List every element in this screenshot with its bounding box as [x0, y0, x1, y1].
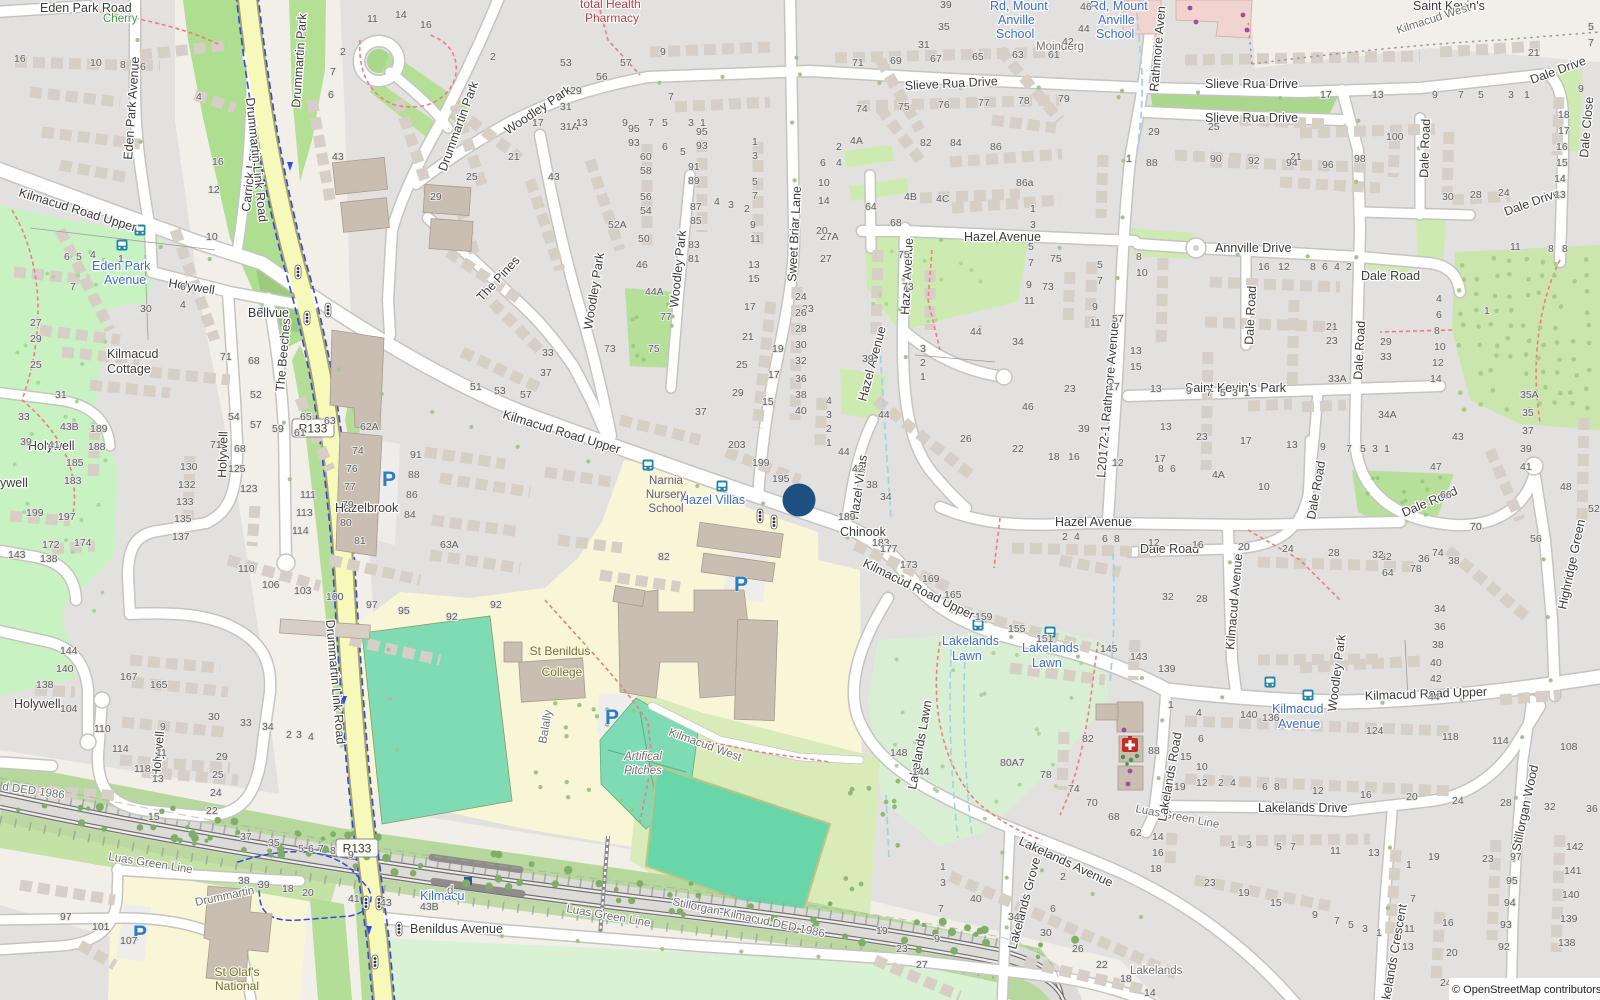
- svg-text:1: 1: [1230, 839, 1236, 851]
- svg-text:25: 25: [212, 769, 224, 781]
- svg-text:10: 10: [818, 177, 830, 189]
- svg-text:43: 43: [332, 151, 344, 163]
- svg-text:35: 35: [1522, 407, 1534, 419]
- svg-text:16: 16: [1068, 451, 1080, 463]
- svg-text:13: 13: [1150, 383, 1162, 395]
- svg-text:Cherry: Cherry: [103, 13, 138, 25]
- svg-text:7: 7: [1588, 37, 1594, 49]
- svg-text:7: 7: [752, 190, 758, 202]
- svg-text:35: 35: [938, 21, 950, 33]
- svg-text:2: 2: [286, 729, 292, 741]
- svg-text:6: 6: [1436, 309, 1442, 321]
- svg-text:177: 177: [880, 543, 898, 555]
- svg-text:17: 17: [1154, 453, 1166, 465]
- svg-text:43: 43: [380, 897, 392, 909]
- svg-text:63: 63: [1012, 49, 1024, 61]
- svg-text:Lakelands Drive: Lakelands Drive: [1258, 801, 1348, 815]
- svg-text:39: 39: [258, 879, 270, 891]
- svg-text:30: 30: [208, 711, 220, 723]
- svg-text:2: 2: [490, 51, 496, 63]
- svg-text:11: 11: [367, 13, 378, 25]
- svg-text:22: 22: [206, 805, 218, 817]
- svg-text:197: 197: [58, 511, 76, 523]
- svg-text:23: 23: [1064, 383, 1076, 395]
- svg-text:16: 16: [1360, 789, 1372, 801]
- svg-text:26: 26: [795, 307, 807, 319]
- svg-text:23: 23: [896, 943, 908, 955]
- svg-text:5: 5: [76, 251, 82, 263]
- svg-text:11: 11: [1330, 845, 1341, 857]
- svg-text:1: 1: [1406, 859, 1412, 871]
- svg-text:7: 7: [1028, 257, 1034, 269]
- svg-text:1: 1: [118, 253, 124, 265]
- svg-text:7: 7: [1346, 443, 1352, 455]
- svg-text:Artifical: Artifical: [623, 751, 662, 763]
- svg-text:19: 19: [772, 343, 784, 355]
- svg-text:Slieve Rua Drive: Slieve Rua Drive: [1205, 77, 1298, 91]
- svg-text:Kilmacud: Kilmacud: [107, 347, 158, 361]
- svg-text:31: 31: [560, 101, 572, 113]
- svg-text:1: 1: [752, 136, 758, 148]
- svg-text:Cottage: Cottage: [107, 362, 151, 376]
- svg-text:School: School: [996, 27, 1034, 41]
- svg-text:6: 6: [1262, 781, 1268, 793]
- svg-text:52A: 52A: [608, 219, 627, 231]
- svg-text:20: 20: [1406, 791, 1418, 803]
- svg-text:169: 169: [922, 573, 940, 585]
- svg-text:6: 6: [328, 89, 334, 101]
- svg-text:32: 32: [1544, 801, 1556, 813]
- svg-text:6: 6: [820, 157, 826, 169]
- svg-text:98: 98: [1354, 153, 1366, 165]
- svg-text:139: 139: [1560, 913, 1578, 925]
- svg-text:13: 13: [576, 117, 588, 129]
- svg-text:76: 76: [938, 99, 950, 111]
- svg-text:4: 4: [1436, 293, 1442, 305]
- svg-text:© OpenStreetMap contributors: © OpenStreetMap contributors: [1452, 984, 1600, 996]
- svg-text:189: 189: [838, 511, 856, 523]
- svg-text:21: 21: [1326, 321, 1338, 333]
- svg-text:Lawn: Lawn: [1032, 656, 1062, 670]
- svg-text:30: 30: [1040, 927, 1052, 939]
- svg-text:11: 11: [1510, 241, 1521, 253]
- svg-text:90: 90: [1210, 153, 1222, 165]
- svg-text:165: 165: [944, 589, 962, 601]
- svg-text:165: 165: [150, 679, 168, 691]
- svg-text:Anville: Anville: [998, 13, 1035, 27]
- svg-text:2: 2: [836, 141, 842, 153]
- svg-text:17: 17: [1320, 89, 1332, 101]
- svg-text:3: 3: [1232, 387, 1238, 399]
- svg-text:113: 113: [296, 507, 313, 519]
- svg-text:6: 6: [1102, 533, 1108, 545]
- svg-text:9: 9: [622, 117, 628, 129]
- svg-text:1: 1: [1030, 203, 1036, 215]
- svg-text:4: 4: [714, 196, 720, 208]
- svg-text:1: 1: [1376, 927, 1382, 939]
- svg-text:82: 82: [658, 551, 670, 563]
- svg-text:13: 13: [1160, 421, 1172, 433]
- svg-text:14: 14: [1144, 987, 1156, 999]
- svg-text:School: School: [648, 503, 683, 515]
- svg-text:52: 52: [1588, 503, 1600, 515]
- svg-text:15: 15: [748, 273, 760, 285]
- svg-text:33: 33: [18, 411, 30, 423]
- svg-text:29: 29: [30, 333, 42, 345]
- svg-text:123: 123: [240, 483, 258, 495]
- svg-text:62A: 62A: [360, 421, 379, 433]
- svg-text:54: 54: [640, 205, 652, 217]
- svg-text:70: 70: [1086, 797, 1098, 809]
- svg-text:1: 1: [826, 437, 832, 449]
- svg-text:11: 11: [1404, 923, 1415, 935]
- svg-text:11: 11: [750, 233, 761, 245]
- svg-text:School: School: [1096, 27, 1134, 41]
- svg-text:138: 138: [40, 553, 58, 565]
- svg-text:21: 21: [1528, 47, 1540, 59]
- svg-text:23: 23: [1482, 853, 1494, 865]
- svg-text:17: 17: [768, 369, 780, 381]
- svg-text:31: 31: [918, 39, 930, 51]
- svg-text:6: 6: [180, 281, 186, 293]
- svg-text:21: 21: [742, 331, 754, 343]
- svg-text:57: 57: [620, 57, 632, 69]
- svg-text:9: 9: [1432, 89, 1438, 101]
- svg-text:140: 140: [56, 663, 74, 675]
- svg-text:7: 7: [1334, 915, 1340, 927]
- svg-text:139: 139: [1158, 663, 1176, 675]
- svg-text:37: 37: [240, 831, 252, 843]
- svg-text:38: 38: [866, 479, 878, 491]
- svg-text:66: 66: [1440, 489, 1452, 501]
- svg-text:1: 1: [920, 371, 926, 383]
- svg-text:189: 189: [90, 423, 108, 435]
- svg-text:7: 7: [668, 91, 674, 103]
- svg-text:4: 4: [1334, 261, 1340, 273]
- svg-text:4: 4: [180, 299, 186, 311]
- svg-text:29: 29: [732, 387, 744, 399]
- svg-text:5: 5: [1097, 259, 1103, 271]
- svg-text:6: 6: [1170, 463, 1176, 475]
- svg-text:97: 97: [1510, 851, 1522, 863]
- svg-text:7: 7: [330, 66, 336, 78]
- svg-text:5: 5: [1028, 241, 1034, 253]
- svg-text:17: 17: [1558, 125, 1570, 137]
- svg-text:8: 8: [1434, 325, 1440, 337]
- svg-text:46: 46: [636, 259, 648, 271]
- svg-text:63A: 63A: [440, 539, 459, 551]
- svg-text:93: 93: [628, 137, 640, 149]
- svg-text:59: 59: [272, 423, 284, 435]
- svg-text:4A: 4A: [850, 135, 863, 147]
- svg-text:Moinderg: Moinderg: [1036, 41, 1084, 53]
- svg-text:4B: 4B: [904, 191, 917, 203]
- svg-text:Bellvue: Bellvue: [248, 306, 289, 320]
- svg-text:42: 42: [1430, 673, 1442, 685]
- svg-text:22: 22: [1096, 959, 1108, 971]
- svg-text:92: 92: [490, 599, 502, 611]
- svg-text:Avenue: Avenue: [1278, 717, 1320, 731]
- svg-text:86a: 86a: [1016, 177, 1034, 189]
- svg-text:100: 100: [326, 591, 344, 603]
- svg-text:16: 16: [1192, 539, 1204, 551]
- svg-text:8: 8: [1114, 533, 1120, 545]
- svg-text:St Benildus: St Benildus: [530, 644, 591, 658]
- svg-text:57: 57: [1112, 313, 1124, 325]
- svg-text:110: 110: [238, 563, 255, 575]
- svg-text:37: 37: [695, 406, 707, 418]
- svg-text:73: 73: [1042, 281, 1054, 293]
- svg-text:total Health: total Health: [580, 0, 641, 11]
- svg-text:22: 22: [1012, 443, 1024, 455]
- svg-text:101: 101: [92, 921, 110, 933]
- svg-text:12: 12: [1196, 777, 1208, 789]
- svg-text:3: 3: [296, 729, 302, 741]
- svg-text:151: 151: [1036, 633, 1054, 645]
- svg-text:10: 10: [1196, 761, 1208, 773]
- svg-text:95: 95: [1506, 875, 1518, 887]
- svg-text:97: 97: [366, 599, 378, 611]
- svg-text:19: 19: [876, 925, 888, 937]
- svg-text:118: 118: [134, 763, 151, 775]
- svg-text:68: 68: [890, 217, 902, 229]
- svg-text:7: 7: [1206, 387, 1212, 399]
- svg-text:7: 7: [1097, 275, 1103, 287]
- svg-text:14: 14: [1152, 831, 1164, 843]
- svg-text:40: 40: [1430, 657, 1442, 669]
- svg-text:25: 25: [736, 359, 748, 371]
- svg-text:32: 32: [1162, 591, 1174, 603]
- svg-text:4: 4: [1230, 777, 1236, 789]
- svg-text:9: 9: [750, 219, 756, 231]
- svg-text:Benildus Avenue: Benildus Avenue: [410, 922, 503, 936]
- svg-text:25: 25: [30, 359, 42, 371]
- svg-text:63: 63: [324, 415, 336, 427]
- svg-text:40: 40: [795, 405, 807, 417]
- svg-text:Holywell: Holywell: [14, 697, 61, 711]
- svg-text:34: 34: [1434, 603, 1446, 615]
- svg-text:4: 4: [1196, 707, 1202, 719]
- svg-text:8: 8: [1136, 251, 1142, 263]
- svg-text:111: 111: [300, 489, 316, 501]
- svg-text:52: 52: [250, 389, 262, 401]
- svg-text:51: 51: [470, 381, 482, 393]
- svg-text:89: 89: [688, 175, 700, 187]
- svg-text:38: 38: [238, 875, 250, 887]
- svg-text:75: 75: [898, 249, 910, 261]
- svg-text:18: 18: [1150, 863, 1162, 875]
- svg-text:29: 29: [570, 85, 582, 97]
- svg-text:36: 36: [1434, 621, 1446, 633]
- svg-text:31: 31: [55, 389, 67, 401]
- svg-text:75: 75: [1050, 253, 1062, 265]
- svg-text:1: 1: [1384, 443, 1390, 455]
- svg-text:106: 106: [262, 579, 280, 591]
- svg-text:15: 15: [762, 396, 774, 408]
- svg-text:50: 50: [638, 233, 650, 245]
- svg-text:148: 148: [890, 747, 908, 759]
- svg-text:9: 9: [1186, 385, 1192, 397]
- svg-text:16: 16: [14, 53, 26, 65]
- svg-text:8: 8: [330, 845, 336, 857]
- svg-text:77: 77: [344, 481, 356, 493]
- svg-text:138: 138: [1558, 937, 1576, 949]
- svg-text:13: 13: [152, 773, 164, 785]
- svg-text:3: 3: [752, 150, 758, 162]
- svg-text:5: 5: [662, 117, 668, 129]
- svg-text:ywell: ywell: [0, 476, 28, 490]
- svg-text:79: 79: [1058, 93, 1070, 105]
- svg-text:5: 5: [1348, 919, 1354, 931]
- svg-text:108: 108: [1560, 741, 1578, 753]
- svg-text:103: 103: [294, 585, 312, 597]
- svg-text:2: 2: [744, 203, 750, 215]
- svg-text:44: 44: [970, 326, 982, 338]
- svg-text:1: 1: [1524, 89, 1530, 101]
- svg-text:5: 5: [752, 176, 758, 188]
- svg-text:2: 2: [340, 46, 346, 58]
- svg-text:3: 3: [728, 199, 734, 211]
- svg-text:6: 6: [1198, 733, 1204, 745]
- svg-text:16: 16: [1442, 917, 1454, 929]
- svg-text:Hazel Avenue: Hazel Avenue: [1055, 515, 1132, 529]
- svg-text:125: 125: [228, 463, 246, 475]
- svg-text:7: 7: [648, 117, 654, 129]
- svg-text:41: 41: [348, 893, 360, 905]
- svg-text:10: 10: [90, 57, 102, 69]
- svg-text:65: 65: [300, 411, 312, 423]
- svg-text:36: 36: [795, 373, 807, 385]
- svg-text:15: 15: [1556, 157, 1568, 169]
- svg-text:12: 12: [1112, 457, 1124, 469]
- svg-text:13: 13: [1554, 189, 1566, 201]
- svg-text:12: 12: [1312, 785, 1324, 797]
- svg-text:77: 77: [978, 97, 990, 109]
- svg-text:4: 4: [1074, 531, 1080, 543]
- svg-text:d: d: [447, 885, 453, 897]
- svg-text:27: 27: [30, 317, 42, 329]
- svg-text:67: 67: [930, 53, 942, 65]
- svg-text:36: 36: [1586, 803, 1598, 815]
- svg-text:44A: 44A: [645, 286, 664, 298]
- svg-text:15: 15: [148, 811, 160, 823]
- svg-text:17: 17: [1108, 381, 1120, 393]
- svg-text:3: 3: [688, 117, 694, 129]
- svg-text:141: 141: [1564, 865, 1582, 877]
- svg-text:7: 7: [70, 281, 76, 293]
- svg-text:86: 86: [406, 489, 418, 501]
- svg-text:34A: 34A: [1378, 409, 1397, 421]
- svg-text:140: 140: [1240, 709, 1258, 721]
- svg-text:29: 29: [1380, 336, 1392, 348]
- svg-text:73: 73: [902, 281, 914, 293]
- svg-text:60: 60: [640, 151, 652, 163]
- svg-text:Lakelands: Lakelands: [1130, 965, 1183, 977]
- svg-text:88: 88: [1146, 157, 1158, 169]
- svg-text:74: 74: [856, 103, 868, 115]
- svg-text:92: 92: [446, 611, 458, 623]
- svg-text:91: 91: [410, 449, 422, 461]
- svg-text:19: 19: [1428, 851, 1440, 863]
- svg-text:91: 91: [688, 161, 700, 173]
- svg-text:5: 5: [1588, 21, 1594, 33]
- svg-text:57: 57: [520, 389, 532, 401]
- svg-text:43: 43: [548, 171, 560, 183]
- svg-text:37: 37: [1522, 425, 1534, 437]
- svg-text:114: 114: [292, 525, 309, 537]
- svg-text:15: 15: [1180, 751, 1192, 763]
- svg-text:100: 100: [1386, 131, 1404, 143]
- svg-text:77: 77: [660, 311, 672, 323]
- svg-text:56: 56: [1530, 533, 1542, 545]
- svg-text:39: 39: [862, 353, 874, 365]
- svg-text:9: 9: [348, 849, 354, 861]
- svg-text:3: 3: [920, 343, 926, 355]
- svg-text:4C: 4C: [936, 193, 950, 205]
- svg-text:133: 133: [176, 496, 194, 508]
- svg-text:6: 6: [662, 141, 668, 153]
- svg-text:10: 10: [1258, 481, 1270, 493]
- svg-text:24: 24: [210, 787, 222, 799]
- svg-text:13: 13: [1130, 345, 1142, 357]
- svg-text:54: 54: [228, 411, 240, 423]
- svg-text:188: 188: [88, 441, 106, 453]
- svg-text:56: 56: [640, 191, 652, 203]
- svg-text:11: 11: [156, 747, 167, 759]
- svg-text:17: 17: [1240, 435, 1252, 447]
- svg-text:94: 94: [1504, 897, 1516, 909]
- svg-text:10: 10: [1136, 267, 1148, 279]
- svg-text:28: 28: [1470, 189, 1482, 201]
- svg-text:75: 75: [898, 101, 910, 113]
- svg-text:9: 9: [660, 46, 666, 58]
- svg-text:4: 4: [196, 91, 202, 103]
- svg-text:Pharmacy: Pharmacy: [585, 11, 639, 25]
- svg-text:71: 71: [210, 439, 222, 451]
- svg-text:124: 124: [1366, 725, 1384, 737]
- svg-text:2: 2: [826, 423, 832, 435]
- svg-text:1: 1: [1126, 153, 1132, 165]
- svg-text:19: 19: [1238, 887, 1250, 899]
- svg-text:155: 155: [1008, 623, 1026, 635]
- svg-text:88: 88: [1148, 745, 1160, 757]
- svg-text:Dale Road: Dale Road: [1417, 119, 1433, 179]
- svg-text:76: 76: [346, 463, 358, 475]
- svg-text:27: 27: [916, 959, 928, 971]
- svg-text:29: 29: [1148, 126, 1160, 138]
- svg-text:25: 25: [466, 171, 478, 183]
- svg-text:64: 64: [865, 201, 877, 213]
- svg-text:14: 14: [1430, 373, 1442, 385]
- svg-text:Dale Road: Dale Road: [1361, 269, 1420, 283]
- svg-text:6: 6: [308, 843, 314, 855]
- svg-text:1: 1: [1168, 699, 1174, 711]
- svg-text:12: 12: [1278, 261, 1290, 273]
- svg-text:14: 14: [395, 9, 407, 21]
- svg-text:24: 24: [1498, 187, 1510, 199]
- svg-text:159: 159: [975, 611, 993, 623]
- svg-text:6: 6: [140, 61, 146, 73]
- svg-text:Pitches: Pitches: [624, 765, 662, 777]
- svg-text:9: 9: [1578, 83, 1584, 95]
- svg-text:172: 172: [42, 539, 60, 551]
- svg-text:13: 13: [1286, 439, 1298, 451]
- svg-text:28: 28: [1196, 593, 1208, 605]
- svg-text:84: 84: [404, 509, 416, 521]
- svg-text:20: 20: [1446, 947, 1458, 959]
- svg-text:39: 39: [1078, 423, 1090, 435]
- svg-text:18: 18: [1120, 973, 1132, 985]
